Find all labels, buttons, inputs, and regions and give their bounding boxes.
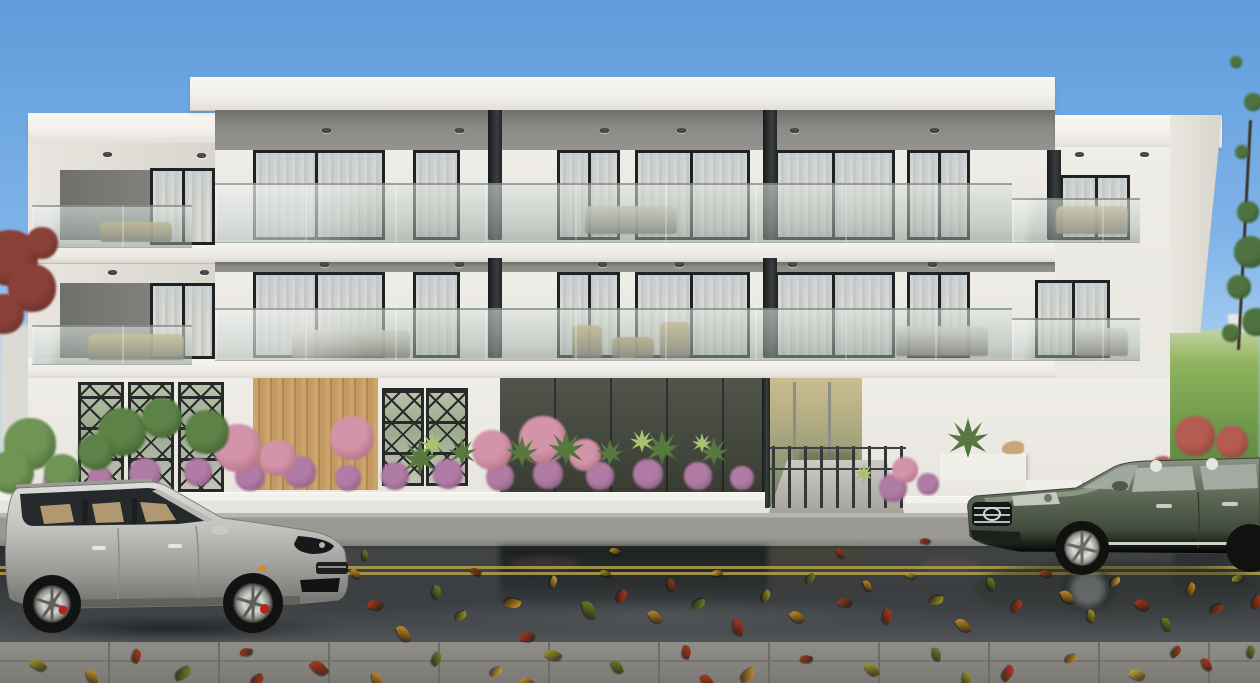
plant-pink xyxy=(330,416,374,460)
plant-puff xyxy=(633,459,663,489)
plant-puff xyxy=(433,459,463,489)
plant-puff xyxy=(684,462,712,490)
recessed-ceiling-light xyxy=(108,270,117,275)
plant-puff xyxy=(381,462,409,490)
sedan-green xyxy=(960,446,1260,576)
plant-palm xyxy=(78,434,114,470)
plant-tree xyxy=(1234,236,1260,268)
sedan-handle-2 xyxy=(1222,502,1238,506)
plant-pink xyxy=(260,440,296,476)
balustrade-top-central xyxy=(215,183,1012,243)
plant-palm xyxy=(142,398,182,438)
plant-tree xyxy=(1222,324,1240,342)
main-soffit-top xyxy=(215,110,1055,150)
sedan-mirror xyxy=(1112,481,1128,491)
plant-tree xyxy=(1230,56,1242,68)
plant-pink xyxy=(472,430,512,470)
architectural-render-scene: Photorealistic exterior visualization of… xyxy=(0,0,1260,683)
recessed-ceiling-light xyxy=(103,152,112,157)
entrance-side-fin xyxy=(762,378,770,508)
floor-slab-lower xyxy=(28,358,1170,380)
recessed-ceiling-light xyxy=(928,262,937,267)
recessed-ceiling-light xyxy=(1075,152,1084,157)
recessed-ceiling-light xyxy=(1140,152,1149,157)
sedan-handle-1 xyxy=(1156,504,1172,508)
recessed-ceiling-light xyxy=(600,128,609,133)
balustrade-top-rightwing xyxy=(1012,198,1140,243)
plant-pink xyxy=(892,457,918,483)
suv-side-marker xyxy=(258,566,266,571)
sedan-front-wheel xyxy=(1055,521,1109,575)
road-reflection-plants-2 xyxy=(510,556,580,572)
pavement-joint xyxy=(0,660,1260,662)
railing-post xyxy=(772,446,775,508)
scene-description: Photorealistic exterior visualization of… xyxy=(0,0,1,1)
railing-post xyxy=(852,446,855,508)
recessed-ceiling-light xyxy=(322,128,331,133)
recessed-ceiling-light xyxy=(788,262,797,267)
railing-post xyxy=(820,446,823,508)
sedan-front-window xyxy=(1132,466,1196,492)
recessed-ceiling-light xyxy=(320,262,329,267)
recessed-ceiling-light xyxy=(197,153,206,158)
balustrade-mid-central xyxy=(215,308,1012,361)
plant-tree xyxy=(1235,145,1249,159)
recessed-ceiling-light xyxy=(598,262,607,267)
railing-post xyxy=(788,446,791,508)
suv-silver xyxy=(0,472,352,644)
recessed-ceiling-light xyxy=(455,262,464,267)
recessed-ceiling-light xyxy=(790,128,799,133)
foreground-pavement xyxy=(0,642,1260,683)
suv-interior-seats xyxy=(40,502,176,524)
recessed-ceiling-light xyxy=(930,128,939,133)
plant-tree xyxy=(1244,93,1260,111)
railing-top-rail xyxy=(770,447,906,449)
plant-puff xyxy=(917,473,939,495)
recessed-ceiling-light xyxy=(677,128,686,133)
recessed-ceiling-light xyxy=(455,128,464,133)
suv-handle-1 xyxy=(92,546,106,550)
plant-tree xyxy=(1227,275,1251,299)
left-wing-roof xyxy=(28,113,215,144)
suv-lower-intake xyxy=(300,578,340,592)
suv-grille-bar xyxy=(318,566,346,568)
railing-post xyxy=(836,446,839,508)
suv-handle-2 xyxy=(168,544,182,548)
suv-front-wheel xyxy=(223,573,283,633)
suv-c-pillar xyxy=(132,498,137,524)
railing-post xyxy=(804,446,807,508)
balustrade-mid-rightwing xyxy=(1012,318,1140,361)
plant-puff xyxy=(730,466,754,490)
main-roof xyxy=(190,77,1055,111)
suv-b-pillar xyxy=(82,500,88,525)
plant-palm xyxy=(185,410,229,454)
plant-tree xyxy=(1237,201,1259,223)
suv-mirror xyxy=(211,525,229,535)
plant-maroon xyxy=(26,227,58,259)
plant-tree xyxy=(1242,308,1260,336)
right-side-return-wall xyxy=(1170,115,1222,333)
suv-headlight-glint xyxy=(319,542,325,548)
suv-rear-wheel xyxy=(23,575,81,633)
balustrade-mid-leftwing xyxy=(32,325,192,365)
sedan-headlight-lamp xyxy=(1044,494,1052,502)
recessed-ceiling-light xyxy=(200,270,209,275)
recessed-ceiling-light xyxy=(675,262,684,267)
railing-mid-rail xyxy=(770,468,906,470)
